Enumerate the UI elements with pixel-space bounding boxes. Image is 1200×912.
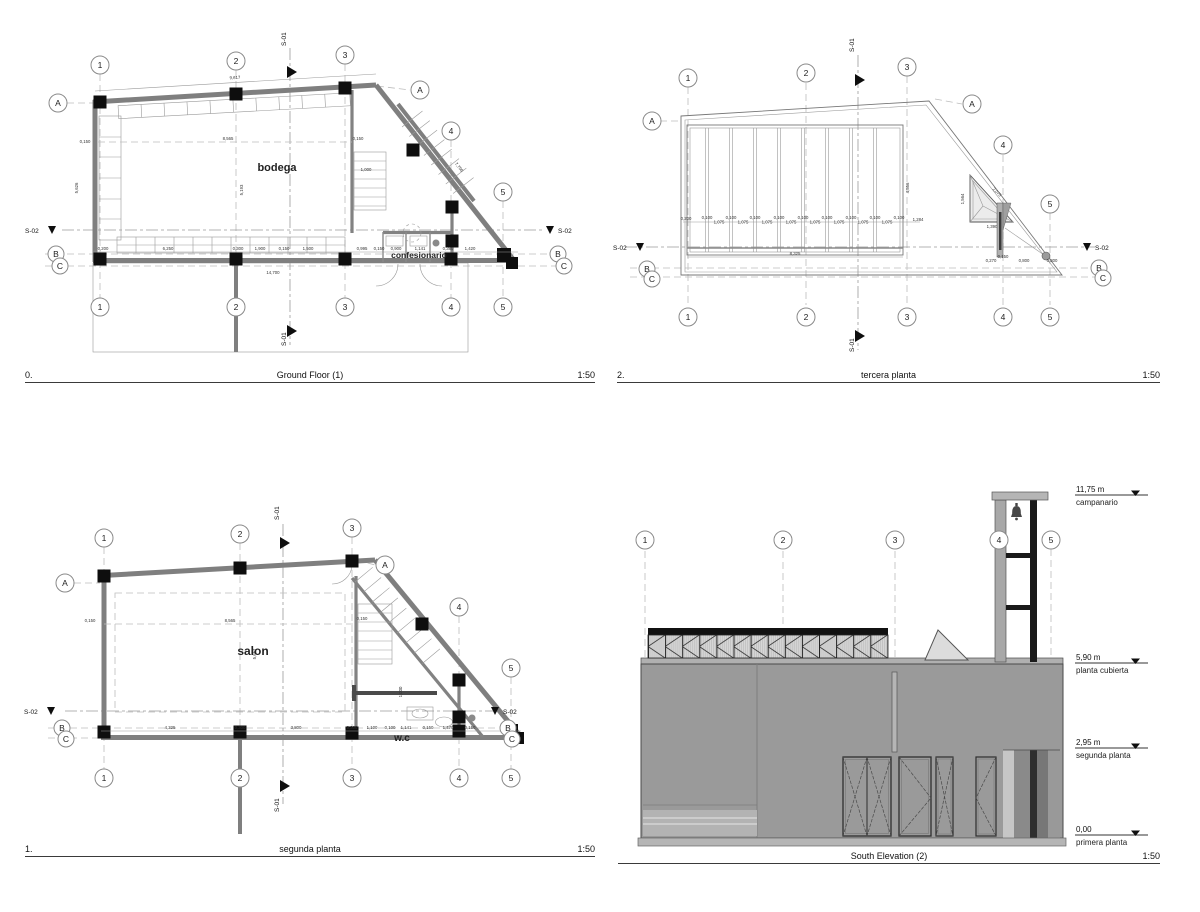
- panel-number: 2.: [617, 370, 677, 380]
- svg-text:3,800: 3,800: [291, 725, 302, 730]
- svg-text:0,100: 0,100: [822, 215, 833, 220]
- svg-text:1,075: 1,075: [810, 220, 821, 225]
- level-markers: 11,75 m campanario 5,90 m planta cubiert…: [1075, 485, 1148, 847]
- svg-text:3: 3: [905, 312, 910, 322]
- clerestory: [648, 628, 888, 658]
- svg-text:1,075: 1,075: [834, 220, 845, 225]
- section-label-s01: S-01: [281, 32, 288, 46]
- svg-text:0,800: 0,800: [1019, 258, 1030, 263]
- svg-text:C: C: [1100, 273, 1106, 283]
- svg-text:C: C: [509, 734, 515, 744]
- room-label-salon: salon: [237, 644, 268, 658]
- left-base-band: [643, 810, 757, 836]
- svg-text:4: 4: [1001, 312, 1006, 322]
- svg-text:4: 4: [997, 535, 1002, 545]
- svg-text:2: 2: [781, 535, 786, 545]
- svg-text:1: 1: [686, 73, 691, 83]
- grid-bubbles: 1 2 3 4 5 1 2 3 4 5 A A B C B C: [639, 58, 1111, 326]
- svg-text:5: 5: [509, 663, 514, 673]
- svg-text:1: 1: [102, 533, 107, 543]
- panel-scale: 1:50: [535, 370, 595, 380]
- panel-scale: 1:50: [535, 844, 595, 854]
- svg-text:0,300: 0,300: [1047, 258, 1058, 263]
- svg-text:C: C: [63, 734, 69, 744]
- dim-label: 1,420: [465, 246, 476, 251]
- panel-title: Ground Floor (1): [85, 370, 535, 380]
- panel-title: segunda planta: [85, 844, 535, 854]
- level-height: 2,95 m: [1076, 738, 1101, 747]
- stairs: [332, 566, 440, 664]
- dim-label: 0,150: [279, 246, 290, 251]
- svg-text:A: A: [55, 98, 61, 108]
- svg-text:B: B: [555, 249, 561, 259]
- svg-text:5: 5: [501, 302, 506, 312]
- svg-text:1,075: 1,075: [738, 220, 749, 225]
- svg-text:8,565: 8,565: [225, 618, 236, 623]
- svg-text:S-02: S-02: [613, 245, 627, 252]
- grid-bubbles: 1 2 3 4 5: [636, 531, 1060, 549]
- svg-text:1,141: 1,141: [401, 725, 412, 730]
- dim-label: 1,500: [303, 246, 314, 251]
- building-mass: [641, 658, 1063, 838]
- svg-text:S-01: S-01: [274, 798, 281, 812]
- svg-text:3: 3: [893, 535, 898, 545]
- svg-text:3: 3: [350, 523, 355, 533]
- svg-text:0,100: 0,100: [385, 725, 396, 730]
- level-height: 0,00: [1076, 825, 1092, 834]
- svg-text:2: 2: [234, 302, 239, 312]
- svg-text:3: 3: [343, 50, 348, 60]
- svg-text:0,100: 0,100: [750, 215, 761, 220]
- svg-text:0,300: 0,300: [235, 725, 246, 730]
- svg-text:0,100: 0,100: [846, 215, 857, 220]
- ground-floor-plan: 9,617 0,150 5,626 8,565 5,193 0,150 7,79…: [0, 0, 600, 456]
- level-height: 5,90 m: [1076, 653, 1101, 662]
- svg-text:0,300: 0,300: [347, 725, 358, 730]
- panel-number: 1.: [25, 844, 85, 854]
- section-markers: S-02 S-02 S-01 S-01: [24, 506, 517, 812]
- svg-text:5: 5: [1049, 535, 1054, 545]
- dim-label: 5,626: [74, 182, 79, 193]
- svg-text:4: 4: [1001, 140, 1006, 150]
- svg-text:2: 2: [238, 529, 243, 539]
- dim-label: 9,617: [229, 75, 241, 81]
- svg-text:1,075: 1,075: [762, 220, 773, 225]
- svg-text:1: 1: [102, 773, 107, 783]
- svg-text:A: A: [417, 85, 423, 95]
- panel-title: tercera planta: [677, 370, 1100, 380]
- titlebar-elevation: South Elevation (2) 1:50: [618, 843, 1160, 864]
- svg-text:S-01: S-01: [849, 38, 856, 52]
- svg-text:1,075: 1,075: [786, 220, 797, 225]
- svg-text:1,075: 1,075: [858, 220, 869, 225]
- dim-label: 0,150: [353, 136, 364, 141]
- dim-label: 14,700: [266, 270, 280, 275]
- svg-text:4,556: 4,556: [905, 182, 910, 193]
- svg-text:S-02: S-02: [503, 709, 517, 716]
- bell-tower: [992, 492, 1048, 662]
- drawing-sheet: 9,617 0,150 5,626 8,565 5,193 0,150 7,79…: [0, 0, 1200, 912]
- svg-text:5: 5: [501, 187, 506, 197]
- level-label: planta cubierta: [1076, 666, 1129, 675]
- entry-recess: [1003, 750, 1060, 838]
- svg-text:C: C: [649, 274, 655, 284]
- svg-text:4: 4: [449, 302, 454, 312]
- svg-text:C: C: [561, 261, 567, 271]
- svg-text:0,150: 0,150: [85, 618, 96, 623]
- section-label-s01: S-01: [281, 332, 288, 346]
- section-markers: S-02 S-02 S-01 S-01: [25, 32, 572, 346]
- svg-text:B: B: [53, 249, 59, 259]
- room-label-wc: w.c: [393, 733, 410, 744]
- dim-label: 8,565: [223, 136, 234, 141]
- svg-text:S-02: S-02: [24, 709, 38, 716]
- dim-label: 0,150: [80, 139, 91, 144]
- svg-text:0,100: 0,100: [870, 215, 881, 220]
- room-label-bodega: bodega: [257, 162, 297, 174]
- panel-number: 0.: [25, 370, 85, 380]
- svg-text:0,100: 0,100: [702, 215, 713, 220]
- dim-label: 0,150: [374, 246, 385, 251]
- svg-text:0,270: 0,270: [986, 258, 997, 263]
- svg-text:4: 4: [457, 602, 462, 612]
- svg-text:0,150: 0,150: [465, 725, 476, 730]
- svg-text:C: C: [57, 261, 63, 271]
- svg-text:5: 5: [509, 773, 514, 783]
- slot-window: [892, 672, 897, 752]
- svg-text:1,000: 1,000: [398, 686, 403, 697]
- svg-text:S-01: S-01: [274, 506, 281, 520]
- svg-text:0,100: 0,100: [798, 215, 809, 220]
- svg-text:A: A: [969, 99, 975, 109]
- svg-text:0,100: 0,100: [774, 215, 785, 220]
- dim-label: 5,193: [239, 184, 244, 195]
- svg-text:5: 5: [1048, 312, 1053, 322]
- panel-scale: 1:50: [1100, 851, 1160, 861]
- svg-text:1: 1: [98, 60, 103, 70]
- svg-text:1: 1: [98, 302, 103, 312]
- svg-text:0,150: 0,150: [357, 616, 368, 621]
- section-label-s02: S-02: [558, 228, 572, 235]
- dim-label: 6,250: [163, 246, 174, 251]
- dimensions: 0,200 0,100 0,100 0,100 0,100 0,100 0,10…: [681, 182, 924, 257]
- svg-text:0,150: 0,150: [998, 254, 1009, 259]
- svg-text:1: 1: [686, 312, 691, 322]
- svg-text:8,325: 8,325: [790, 251, 801, 256]
- svg-text:1,470: 1,470: [443, 725, 454, 730]
- roof-outline: [681, 101, 1062, 275]
- svg-text:1,390: 1,390: [987, 224, 998, 229]
- svg-text:0,100: 0,100: [894, 215, 905, 220]
- bell-icon: [1011, 503, 1022, 520]
- svg-text:2: 2: [804, 312, 809, 322]
- section-label-s02: S-02: [25, 228, 39, 235]
- dim-label: 0,995: [357, 246, 368, 251]
- svg-text:0,100: 0,100: [726, 215, 737, 220]
- level-label: segunda planta: [1076, 751, 1131, 760]
- svg-text:S-01: S-01: [849, 338, 856, 352]
- svg-text:0,150: 0,150: [423, 725, 434, 730]
- svg-text:3: 3: [905, 62, 910, 72]
- room-label-confesionario: confesionario: [391, 250, 447, 260]
- panel-scale: 1:50: [1100, 370, 1160, 380]
- svg-text:4: 4: [449, 126, 454, 136]
- dim-label: 1,900: [255, 246, 266, 251]
- salon-dashed-outline: [115, 593, 345, 712]
- svg-text:1,100: 1,100: [367, 725, 378, 730]
- svg-text:5: 5: [1048, 199, 1053, 209]
- level-label: campanario: [1076, 498, 1118, 507]
- panel-title: South Elevation (2): [678, 851, 1100, 861]
- skylight-triangle: [925, 630, 968, 660]
- svg-text:S-02: S-02: [1095, 245, 1109, 252]
- dim-label: 0,300: [233, 246, 244, 251]
- titlebar-segunda: 1. segunda planta 1:50: [25, 836, 595, 857]
- svg-text:1: 1: [643, 535, 648, 545]
- svg-text:4,325: 4,325: [165, 725, 176, 730]
- grid-lines: [625, 55, 1110, 350]
- svg-text:4: 4: [457, 773, 462, 783]
- dim-label: 0,200: [98, 246, 109, 251]
- svg-text:A: A: [649, 116, 655, 126]
- titlebar-ground-floor: 0. Ground Floor (1) 1:50: [25, 362, 595, 383]
- titlebar-tercera: 2. tercera planta 1:50: [617, 362, 1160, 383]
- svg-text:1,075: 1,075: [882, 220, 893, 225]
- svg-text:1,564: 1,564: [960, 193, 965, 204]
- svg-text:A: A: [382, 560, 388, 570]
- svg-text:2: 2: [238, 773, 243, 783]
- svg-text:0,200: 0,200: [681, 216, 692, 221]
- svg-text:1,284: 1,284: [913, 217, 924, 222]
- columns: [98, 555, 525, 745]
- dim-label: 1,000: [361, 167, 372, 172]
- grid-lines: [45, 48, 560, 345]
- svg-text:1,075: 1,075: [714, 220, 725, 225]
- svg-text:A: A: [62, 578, 68, 588]
- svg-text:3: 3: [350, 773, 355, 783]
- svg-text:3: 3: [343, 302, 348, 312]
- dim-label: 7,796: [454, 161, 465, 173]
- level-height: 11,75 m: [1076, 485, 1105, 494]
- svg-text:2: 2: [234, 56, 239, 66]
- svg-text:2: 2: [804, 68, 809, 78]
- tercera-planta-plan: 1,564 2,075 1,390 0,270 0,150 0,800 0,30…: [600, 0, 1200, 456]
